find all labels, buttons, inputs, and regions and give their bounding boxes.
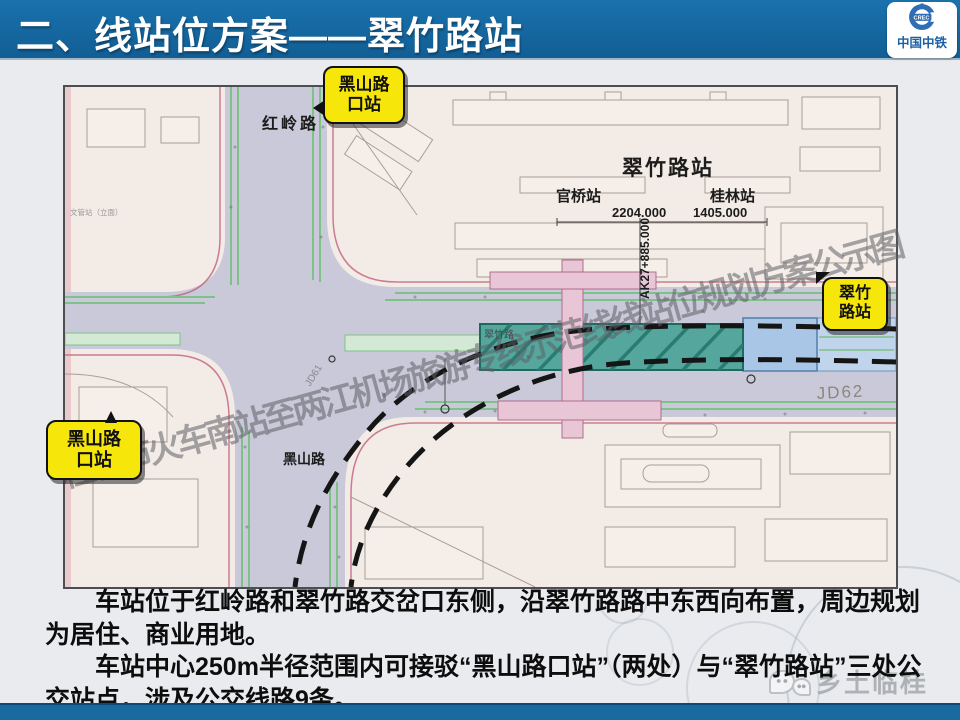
logo-name: 中国中铁 [887, 37, 957, 50]
callout-line: 黑山路 [50, 429, 138, 450]
logo-emblem-text: CREC [914, 16, 930, 22]
label-cuizhu-road: 翠竹路 [484, 328, 514, 341]
title-bar: 二、线站位方案——翠竹路站 [0, 0, 960, 60]
body-text: 车站位于红岭路和翠竹路交岔口东侧，沿翠竹路路中东西向布置，周边规划为居住、商业用… [45, 586, 925, 716]
label-dim-left: 2204.000 [612, 205, 666, 220]
label-guilin-station: 桂林站 [709, 187, 755, 205]
slide-title: 二、线站位方案——翠竹路站 [16, 5, 523, 60]
callout-heishanlukou-left: 黑山路 口站 [46, 420, 142, 480]
callout-heishanlukou-top: 黑山路 口站 [323, 66, 405, 124]
label-guanqiao-station: 官桥站 [556, 187, 601, 205]
site-plan-map: 红岭路 翠竹路站 官桥站 桂林站 2204.000 1405.000 AK27+… [65, 87, 896, 587]
label-hongling-road: 红岭路 [262, 114, 319, 133]
crec-emblem-icon: CREC [905, 2, 939, 34]
crec-logo: CREC 中国中铁 [887, 2, 957, 58]
slide: 二、线站位方案——翠竹路站 CREC 中国中铁 [0, 0, 960, 720]
callout-line: 口站 [50, 450, 138, 471]
bottom-bar [0, 703, 960, 720]
callout-line: 翠竹 [826, 285, 884, 304]
callout-cuizhulu-right: 翠竹 路站 [822, 277, 888, 331]
callout-pointer [105, 411, 117, 423]
callout-pointer [313, 100, 325, 116]
callout-line: 口站 [327, 95, 401, 115]
label-note-small: 文管站（立面） [70, 207, 123, 217]
label-chainage: AK27+885.000 [638, 218, 652, 299]
label-dim-right: 1405.000 [693, 205, 747, 220]
map-panel: 红岭路 翠竹路站 官桥站 桂林站 2204.000 1405.000 AK27+… [63, 85, 898, 589]
callout-pointer [816, 272, 830, 284]
callout-line: 路站 [826, 304, 884, 323]
label-cuizhu-station: 翠竹路站 [622, 156, 714, 180]
body-paragraph-1: 车站位于红岭路和翠竹路交岔口东侧，沿翠竹路路中东西向布置，周边规划为居住、商业用… [45, 586, 925, 651]
label-jd62: JD62 [816, 382, 865, 403]
label-heishan-road: 黑山路 [283, 451, 326, 467]
callout-line: 黑山路 [327, 75, 401, 95]
